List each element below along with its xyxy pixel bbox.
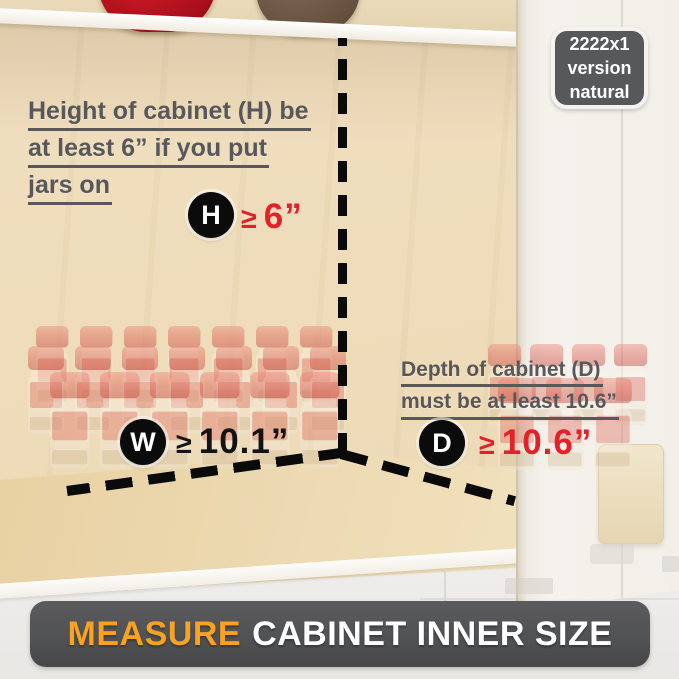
height-note-line: jars on: [28, 171, 112, 205]
depth-note-line: Depth of cabinet (D): [401, 358, 603, 387]
depth-value-text: 10.6”: [502, 423, 593, 462]
measurement-diagram: Height of cabinet (H) be at least 6” if …: [0, 0, 679, 679]
height-note-line: at least 6” if you put: [28, 134, 269, 168]
width-value: ≥10.1”: [176, 422, 289, 462]
depth-marker-circle: D: [419, 420, 465, 466]
version-badge: 2222x1 version natural: [551, 27, 648, 109]
depth-value: ≥10.6”: [479, 423, 592, 463]
greater-equal-icon: ≥: [176, 428, 193, 460]
badge-line: version: [567, 56, 631, 80]
height-note-line: Height of cabinet (H) be: [28, 97, 311, 131]
caption-highlight: MEASURE: [68, 615, 242, 654]
width-marker-circle: W: [120, 419, 166, 465]
greater-equal-icon: ≥: [479, 429, 496, 461]
height-value: ≥6”: [241, 197, 303, 237]
greater-equal-icon: ≥: [241, 203, 258, 235]
depth-note: Depth of cabinet (D) must be at least 10…: [401, 358, 619, 423]
depth-note-line: must be at least 10.6”: [401, 390, 619, 419]
spice-rack-slide: [590, 544, 634, 564]
caption-banner: MEASURE CABINET INNER SIZE: [30, 601, 650, 667]
caption-text: CABINET INNER SIZE: [252, 615, 612, 654]
height-dimension-line: [338, 38, 347, 454]
badge-line: 2222x1: [569, 32, 629, 56]
height-note: Height of cabinet (H) be at least 6” if …: [28, 97, 311, 208]
spice-jar: [50, 372, 90, 469]
drawer-slide: [505, 578, 553, 594]
badge-line: natural: [569, 80, 629, 104]
height-value-text: 6”: [264, 197, 303, 236]
drawer-slide: [662, 556, 679, 572]
height-marker-circle: H: [188, 192, 234, 238]
width-value-text: 10.1”: [199, 422, 290, 461]
